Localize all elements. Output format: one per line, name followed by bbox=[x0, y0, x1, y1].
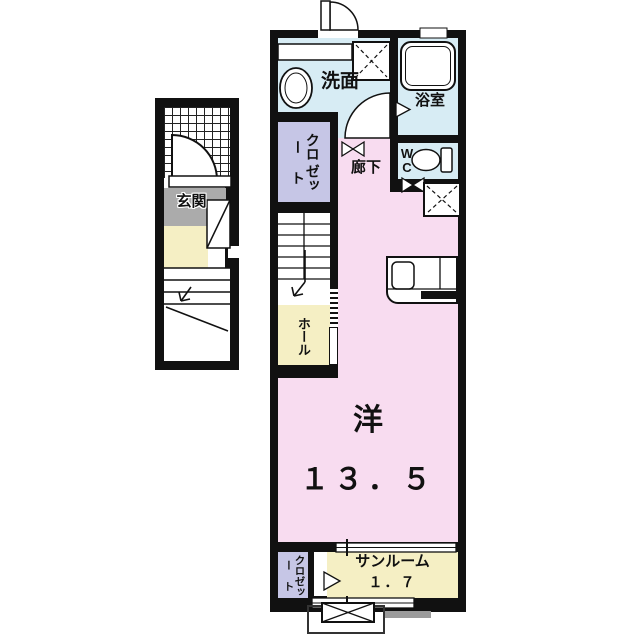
wall bbox=[278, 365, 338, 378]
wc-label: W C bbox=[399, 145, 415, 177]
closet-lower-col1: クロー bbox=[282, 555, 304, 576]
entry-porch bbox=[164, 107, 230, 178]
bath-label: 浴室 bbox=[406, 92, 454, 110]
wall bbox=[390, 38, 398, 192]
wall bbox=[458, 30, 466, 612]
wall bbox=[398, 135, 458, 143]
closet-lower-label: クロー ゼット bbox=[280, 555, 307, 597]
wall bbox=[270, 542, 466, 552]
closet-lower-col2: ゼット bbox=[282, 576, 304, 597]
wc-label-c: C bbox=[402, 161, 411, 175]
wall bbox=[155, 98, 239, 107]
wc-label-w: W bbox=[401, 147, 413, 161]
wall-niche bbox=[228, 246, 239, 258]
sunroom-size-text: １．７ bbox=[369, 575, 417, 590]
entry-hall bbox=[164, 226, 208, 268]
main-room-size-text: １３．５ bbox=[300, 465, 436, 495]
wall bbox=[155, 361, 239, 370]
washroom-label: 洗面 bbox=[303, 70, 377, 94]
wall bbox=[278, 112, 338, 122]
stairs-left-arrow bbox=[179, 287, 191, 301]
main-room-size: １３．５ bbox=[278, 462, 458, 498]
closet-upper-col1: クロー bbox=[290, 131, 319, 162]
entry-door-gap bbox=[318, 30, 358, 38]
washroom-label-text: 洗面 bbox=[321, 72, 359, 92]
hall-label: ホール bbox=[293, 312, 313, 360]
stair-railing bbox=[330, 287, 338, 327]
wall bbox=[270, 30, 278, 612]
floor-plan: 玄関 洗面 浴室 クロー ゼット 廊下 W C ホール 洋 １３．５ サンルーム… bbox=[0, 0, 640, 640]
front-door bbox=[321, 1, 358, 30]
wall bbox=[155, 98, 164, 370]
sunroom-label: サンルーム bbox=[327, 553, 458, 571]
wall bbox=[330, 112, 338, 287]
wall bbox=[270, 596, 466, 612]
wall bbox=[270, 30, 466, 38]
balcony-strip bbox=[383, 611, 431, 618]
hall-opening bbox=[329, 327, 338, 365]
wall bbox=[308, 552, 314, 598]
entry-label: 玄関 bbox=[164, 192, 219, 212]
room-washroom-lower bbox=[338, 112, 390, 138]
stairs-left-lines bbox=[164, 268, 230, 331]
entry-label-text: 玄関 bbox=[176, 194, 206, 210]
corridor-label: 廊下 bbox=[344, 159, 388, 177]
wall bbox=[278, 202, 330, 213]
closet-upper-col2: ゼット bbox=[290, 162, 319, 193]
sunroom-size: １．７ bbox=[327, 574, 458, 590]
stairs-main bbox=[278, 213, 330, 305]
main-room-label: 洋 bbox=[278, 403, 458, 439]
kitchen-counter bbox=[386, 256, 458, 304]
bath-label-text: 浴室 bbox=[415, 93, 445, 109]
closet-upper-label: クロー ゼット bbox=[286, 131, 324, 193]
main-room-label-text: 洋 bbox=[353, 405, 383, 437]
wall bbox=[390, 179, 458, 192]
sunroom-label-text: サンルーム bbox=[355, 554, 430, 570]
room-bath bbox=[398, 38, 458, 135]
hall-label-text: ホール bbox=[296, 317, 310, 356]
corridor-label-text: 廊下 bbox=[351, 160, 381, 176]
